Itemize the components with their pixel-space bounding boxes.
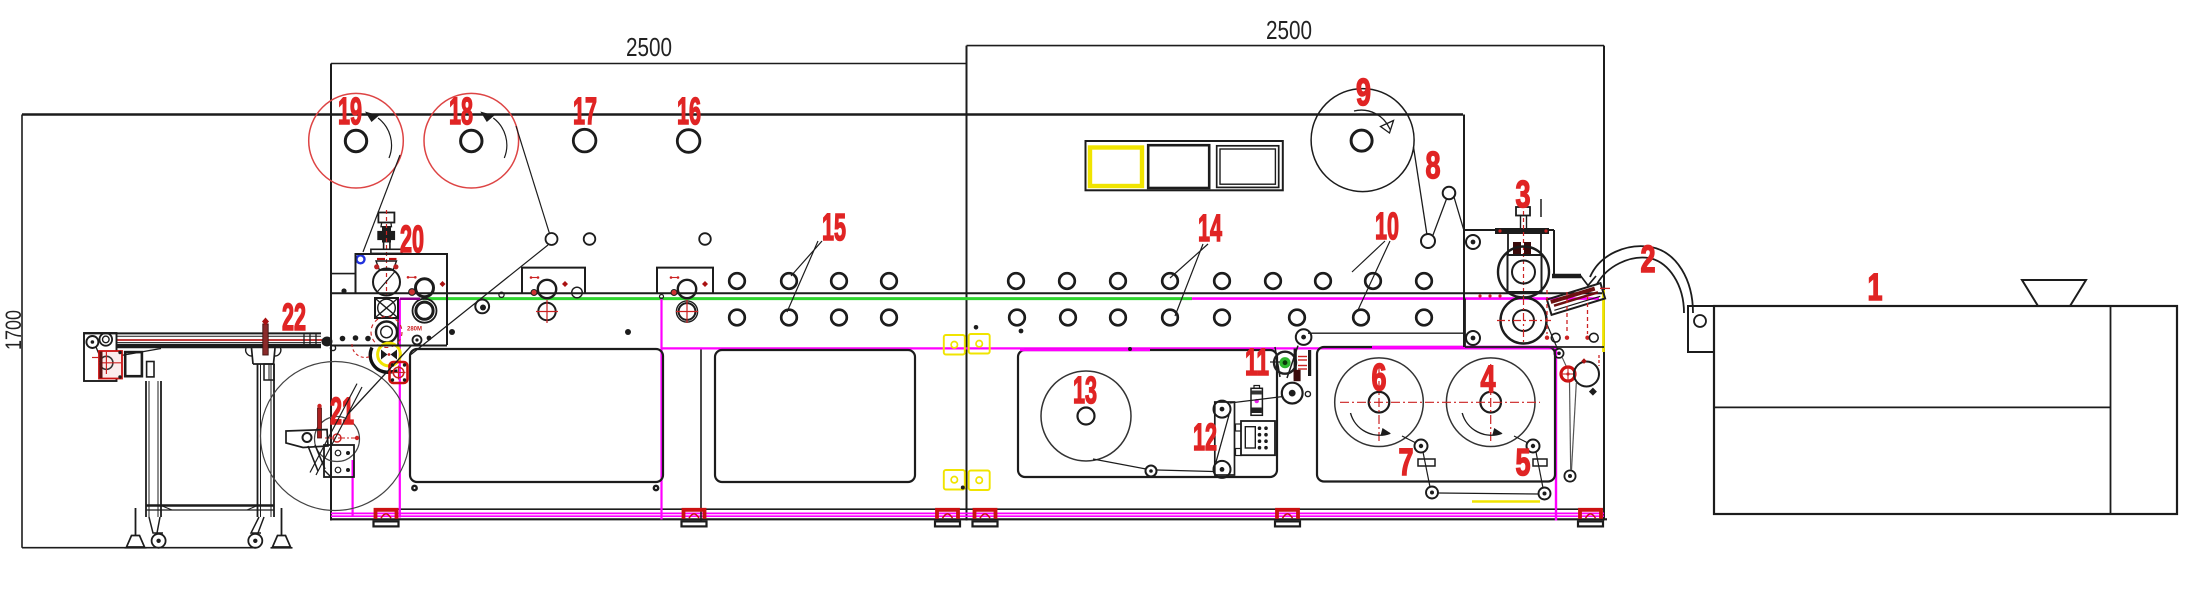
svg-text:11: 11	[1245, 342, 1269, 384]
svg-text:17: 17	[573, 91, 597, 133]
svg-text:18: 18	[449, 91, 473, 133]
svg-text:3: 3	[1516, 174, 1531, 216]
svg-text:2500: 2500	[626, 32, 672, 62]
svg-text:2: 2	[1641, 239, 1656, 281]
svg-text:13: 13	[1073, 370, 1097, 412]
svg-text:8: 8	[1426, 145, 1441, 187]
svg-text:22: 22	[282, 297, 306, 339]
svg-text:1: 1	[1868, 267, 1883, 309]
svg-text:12: 12	[1193, 417, 1217, 459]
svg-text:5: 5	[1516, 442, 1531, 484]
svg-text:16: 16	[677, 91, 701, 133]
svg-text:7: 7	[1399, 442, 1414, 484]
svg-text:6: 6	[1372, 357, 1387, 399]
svg-text:1700: 1700	[1, 310, 26, 350]
svg-text:10: 10	[1375, 206, 1399, 248]
svg-text:9: 9	[1356, 72, 1371, 114]
svg-text:19: 19	[338, 91, 362, 133]
svg-text:280M: 280M	[407, 327, 422, 333]
svg-text:14: 14	[1198, 208, 1222, 250]
svg-text:4: 4	[1481, 359, 1496, 401]
svg-text:2500: 2500	[1266, 15, 1312, 45]
svg-text:15: 15	[822, 207, 846, 249]
